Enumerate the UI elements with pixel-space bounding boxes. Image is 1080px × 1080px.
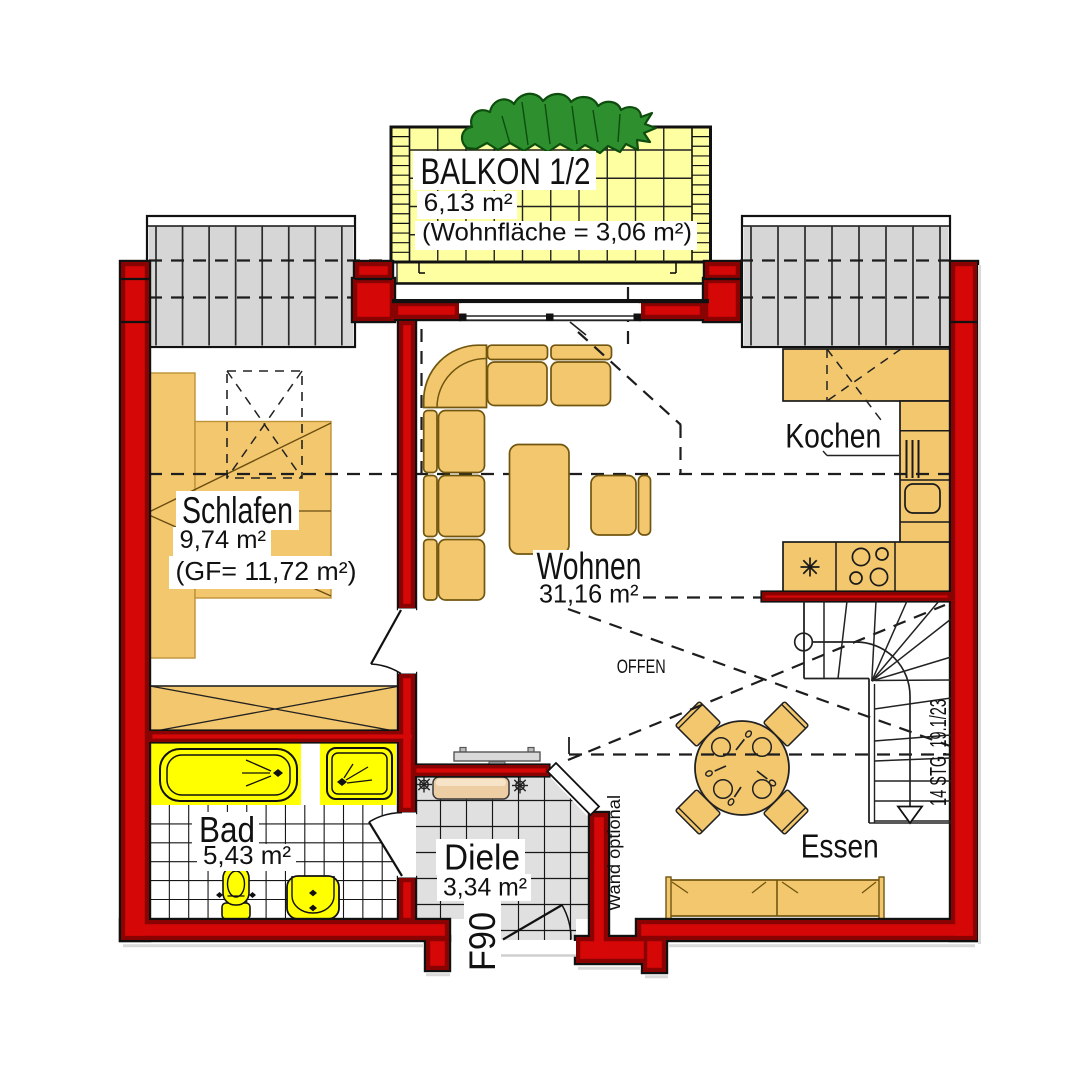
svg-text:BALKON 1/2: BALKON 1/2 — [421, 151, 591, 192]
svg-text:Diele: Diele — [444, 837, 520, 878]
svg-text:14 STG. 19.1/23: 14 STG. 19.1/23 — [925, 699, 951, 806]
svg-text:31,16 m²: 31,16 m² — [539, 579, 639, 609]
svg-text:3,34 m²: 3,34 m² — [443, 874, 527, 902]
svg-text:F90: F90 — [462, 912, 503, 971]
svg-text:9,74 m²: 9,74 m² — [180, 526, 267, 554]
svg-text:(GF= 11,72 m²): (GF= 11,72 m²) — [176, 556, 357, 586]
svg-text:5,43 m²: 5,43 m² — [203, 840, 291, 870]
svg-text:Schlafen: Schlafen — [182, 490, 293, 531]
svg-text:Kochen: Kochen — [785, 418, 881, 456]
svg-text:6,13 m²: 6,13 m² — [424, 189, 513, 217]
svg-text:Wand optional: Wand optional — [604, 795, 624, 911]
svg-text:OFFEN: OFFEN — [617, 657, 666, 678]
svg-text:Essen: Essen — [801, 828, 879, 865]
svg-text:(Wohnfläche = 3,06 m²): (Wohnfläche = 3,06 m²) — [422, 219, 692, 247]
